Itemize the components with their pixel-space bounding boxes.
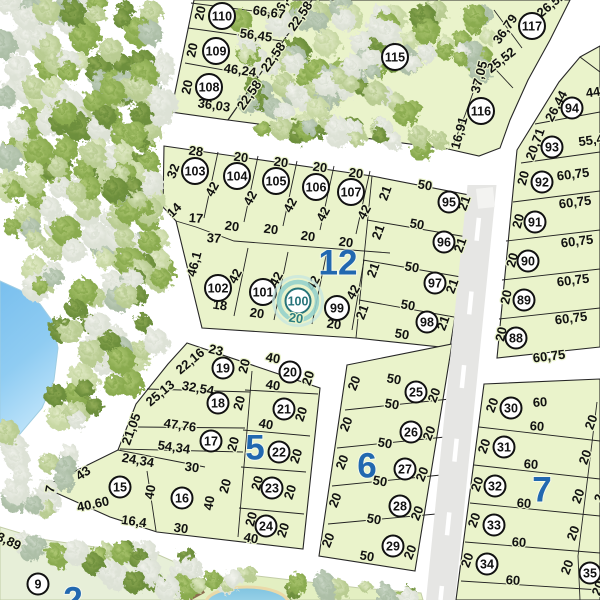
svg-text:94: 94: [565, 102, 579, 116]
svg-text:44: 44: [585, 83, 600, 100]
svg-text:29: 29: [386, 540, 400, 554]
svg-text:60: 60: [529, 418, 544, 434]
svg-text:50: 50: [386, 370, 403, 387]
svg-text:20: 20: [300, 228, 316, 245]
svg-text:40: 40: [265, 376, 282, 393]
svg-text:107: 107: [341, 186, 362, 200]
svg-text:23: 23: [265, 482, 279, 496]
svg-text:50: 50: [409, 215, 426, 232]
svg-text:20: 20: [249, 305, 265, 322]
svg-text:20: 20: [191, 4, 209, 21]
svg-text:19: 19: [216, 362, 230, 376]
svg-text:90: 90: [521, 255, 535, 269]
svg-text:88: 88: [509, 332, 523, 346]
svg-text:50: 50: [400, 296, 417, 313]
svg-text:50: 50: [377, 434, 394, 451]
svg-text:35: 35: [583, 567, 597, 581]
svg-text:6: 6: [357, 447, 376, 486]
svg-text:102: 102: [208, 282, 229, 296]
svg-text:97: 97: [428, 277, 442, 291]
svg-text:50: 50: [394, 325, 411, 342]
svg-text:104: 104: [227, 170, 248, 184]
svg-text:95: 95: [442, 196, 456, 210]
svg-text:60: 60: [532, 394, 547, 410]
svg-text:40: 40: [200, 495, 217, 512]
svg-text:40: 40: [265, 349, 282, 366]
svg-text:21: 21: [277, 403, 291, 417]
svg-text:30: 30: [504, 402, 518, 416]
svg-text:100: 100: [288, 295, 309, 309]
svg-text:26: 26: [404, 426, 418, 440]
svg-text:92: 92: [535, 176, 549, 190]
svg-text:50: 50: [384, 395, 401, 412]
svg-text:110: 110: [212, 10, 232, 24]
svg-text:25: 25: [409, 386, 423, 400]
svg-text:20: 20: [497, 288, 515, 305]
svg-text:17: 17: [204, 435, 218, 449]
svg-text:20: 20: [224, 218, 240, 235]
svg-text:16: 16: [175, 492, 189, 506]
svg-text:50: 50: [417, 176, 434, 193]
svg-text:9: 9: [35, 578, 42, 592]
svg-text:7: 7: [532, 471, 551, 510]
svg-text:22: 22: [272, 446, 286, 460]
svg-text:28: 28: [188, 143, 204, 160]
svg-text:33: 33: [487, 519, 501, 533]
svg-text:60: 60: [505, 572, 520, 588]
svg-text:5: 5: [245, 429, 264, 468]
svg-text:20: 20: [283, 366, 297, 380]
svg-text:30: 30: [184, 459, 200, 476]
svg-text:32: 32: [488, 480, 502, 494]
svg-text:30: 30: [173, 520, 189, 537]
svg-text:34: 34: [480, 558, 494, 572]
svg-text:60: 60: [511, 534, 526, 550]
svg-text:116: 116: [471, 105, 491, 119]
svg-text:28: 28: [393, 500, 407, 514]
svg-text:18: 18: [211, 397, 225, 411]
svg-text:55,4: 55,4: [577, 131, 600, 149]
svg-text:2: 2: [63, 581, 82, 600]
svg-text:108: 108: [199, 81, 220, 95]
svg-text:50: 50: [366, 510, 383, 527]
svg-text:96: 96: [437, 236, 451, 250]
svg-text:117: 117: [522, 20, 542, 34]
svg-text:20: 20: [288, 310, 304, 327]
svg-text:20: 20: [312, 159, 328, 176]
svg-text:40: 40: [141, 484, 158, 501]
svg-text:109: 109: [206, 45, 227, 59]
svg-text:12: 12: [319, 244, 358, 283]
svg-text:99: 99: [330, 302, 344, 316]
svg-text:93: 93: [545, 141, 559, 155]
svg-text:106: 106: [306, 181, 327, 195]
svg-text:24: 24: [259, 520, 273, 534]
svg-text:50: 50: [404, 258, 421, 275]
svg-text:17: 17: [188, 210, 203, 226]
svg-text:60: 60: [516, 495, 531, 511]
svg-text:98: 98: [420, 316, 434, 330]
svg-text:20: 20: [178, 78, 196, 95]
svg-text:50: 50: [359, 547, 376, 564]
svg-text:27: 27: [398, 463, 412, 477]
svg-text:31: 31: [497, 441, 511, 455]
svg-text:20: 20: [263, 221, 279, 238]
svg-text:89: 89: [517, 294, 531, 308]
svg-text:101: 101: [253, 286, 274, 300]
svg-text:105: 105: [266, 175, 287, 189]
svg-text:20: 20: [183, 41, 201, 58]
svg-text:37: 37: [206, 230, 221, 246]
svg-text:91: 91: [528, 216, 542, 230]
svg-text:15: 15: [113, 481, 127, 495]
svg-text:115: 115: [385, 51, 405, 65]
svg-text:103: 103: [185, 165, 206, 179]
